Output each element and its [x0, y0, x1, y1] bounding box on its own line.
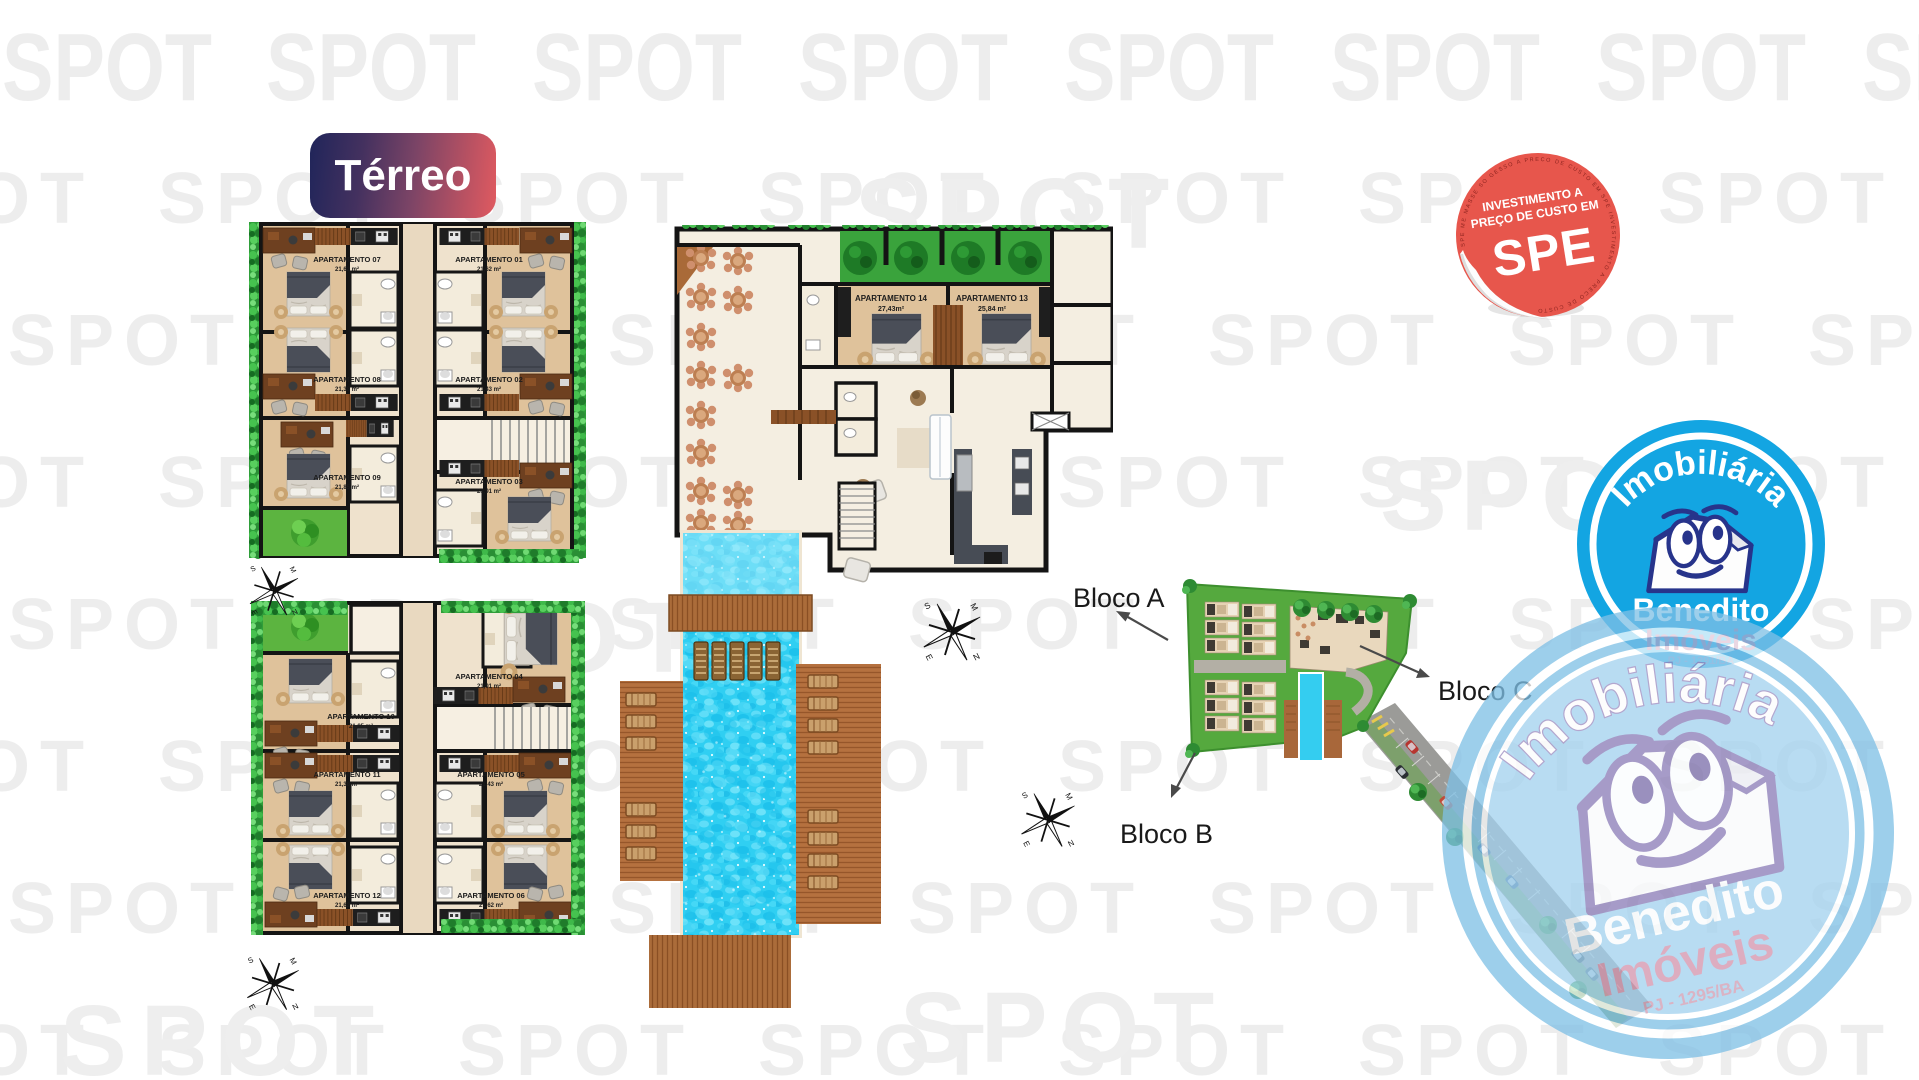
svg-text:S: S [1020, 790, 1029, 800]
svg-text:APARTAMENTO 06: APARTAMENTO 06 [457, 891, 525, 900]
svg-text:APARTAMENTO 12: APARTAMENTO 12 [313, 891, 381, 900]
svg-text:E: E [250, 608, 260, 617]
svg-text:SPOT: SPOT [1862, 14, 1919, 121]
svg-text:N: N [1066, 838, 1076, 849]
svg-text:APARTAMENTO 04: APARTAMENTO 04 [455, 672, 523, 681]
svg-text:APARTAMENTO 01: APARTAMENTO 01 [455, 255, 523, 264]
svg-text:21,91 m²: 21,91 m² [477, 683, 501, 690]
svg-text:21,62 m²: 21,62 m² [479, 902, 503, 909]
svg-text:E: E [924, 652, 936, 662]
svg-text:S: S [246, 955, 255, 965]
svg-text:21,43 m²: 21,43 m² [477, 386, 501, 393]
svg-text:APARTAMENTO 13: APARTAMENTO 13 [956, 294, 1029, 303]
svg-text:SPOT: SPOT [532, 14, 742, 121]
svg-text:APARTAMENTO 11: APARTAMENTO 11 [313, 770, 380, 779]
svg-text:21,43 m²: 21,43 m² [479, 781, 503, 788]
svg-text:27,43m²: 27,43m² [878, 306, 905, 313]
svg-text:SPOT: SPOT [1330, 14, 1540, 121]
svg-text:21,62 m²: 21,62 m² [335, 266, 359, 273]
svg-text:APARTAMENTO 09: APARTAMENTO 09 [313, 473, 381, 482]
svg-text:21,62 m²: 21,62 m² [335, 902, 359, 909]
svg-text:APARTAMENTO 10: APARTAMENTO 10 [327, 712, 395, 721]
svg-text:21,85 m²: 21,85 m² [349, 723, 373, 730]
svg-text:21,38 m²: 21,38 m² [335, 781, 359, 788]
svg-text:APARTAMENTO 08: APARTAMENTO 08 [313, 375, 381, 384]
svg-text:M: M [968, 601, 980, 612]
svg-text:SPOT: SPOT [1064, 14, 1274, 121]
svg-text:SPOT: SPOT [1596, 14, 1806, 121]
svg-text:APARTAMENTO 03: APARTAMENTO 03 [455, 477, 523, 486]
svg-text:S: S [249, 563, 258, 573]
svg-text:SPOT: SPOT [266, 14, 476, 121]
svg-text:APARTAMENTO 14: APARTAMENTO 14 [855, 294, 928, 303]
svg-text:SPOT: SPOT [60, 985, 388, 1080]
svg-text:APARTAMENTO 07: APARTAMENTO 07 [313, 255, 381, 264]
svg-text:21,91 m²: 21,91 m² [477, 488, 501, 495]
svg-text:21,62 m²: 21,62 m² [477, 266, 501, 273]
svg-text:21,38 m²: 21,38 m² [335, 386, 359, 393]
svg-text:E: E [247, 1003, 257, 1012]
svg-text:21,85 m²: 21,85 m² [335, 484, 359, 491]
svg-text:APARTAMENTO 02: APARTAMENTO 02 [455, 375, 523, 384]
svg-text:N: N [971, 651, 981, 663]
svg-text:E: E [1021, 839, 1031, 848]
svg-text:S: S [922, 600, 932, 612]
svg-text:M: M [1063, 791, 1074, 801]
svg-text:SPOT: SPOT [2, 14, 212, 121]
svg-text:N: N [290, 607, 299, 617]
svg-text:M: M [288, 956, 299, 966]
svg-text:SPOT: SPOT [798, 14, 1008, 121]
svg-text:M: M [288, 565, 299, 575]
svg-text:APARTAMENTO 05: APARTAMENTO 05 [457, 770, 525, 779]
svg-text:N: N [291, 1001, 300, 1012]
svg-text:25,84 m²: 25,84 m² [978, 306, 1007, 313]
